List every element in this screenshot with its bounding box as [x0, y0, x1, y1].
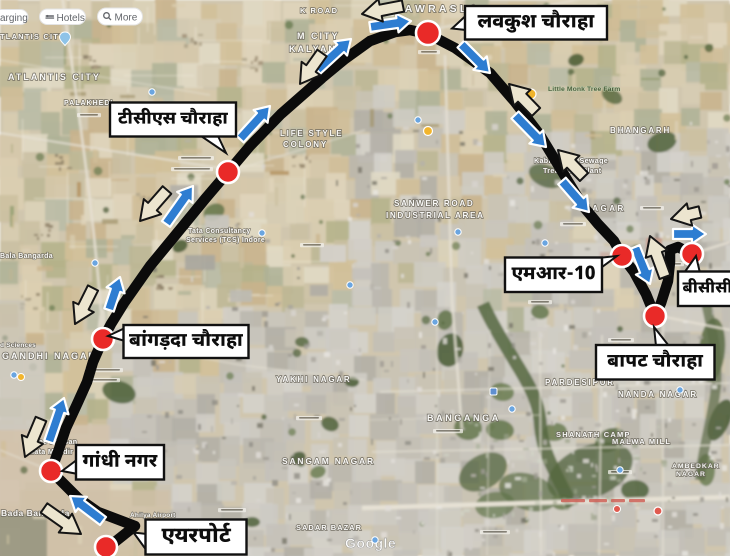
- svg-text:AMBEDKAR: AMBEDKAR: [672, 463, 720, 470]
- svg-text:TLANTIS CITY: TLANTIS CITY: [0, 32, 65, 41]
- svg-text:PALAKHEDI: PALAKHEDI: [64, 100, 113, 107]
- svg-text:SADAR BAZAR: SADAR BAZAR: [296, 523, 362, 532]
- svg-text:MALWA MILL: MALWA MILL: [612, 437, 671, 446]
- svg-text:NAGAR: NAGAR: [676, 471, 706, 478]
- svg-text:BHANGARH: BHANGARH: [610, 126, 671, 135]
- svg-text:GANDHI NAGAR: GANDHI NAGAR: [2, 351, 97, 361]
- svg-text:d Sciences: d Sciences: [0, 342, 36, 349]
- svg-text:arging: arging: [0, 13, 28, 24]
- svg-text:More: More: [115, 13, 138, 24]
- svg-text:COLONY: COLONY: [283, 140, 328, 149]
- svg-text:K ROAD: K ROAD: [300, 6, 339, 15]
- svg-text:BANGANGA: BANGANGA: [427, 413, 501, 423]
- svg-text:NANDA NAGAR: NANDA NAGAR: [618, 390, 698, 399]
- svg-text:Tata Consultancy: Tata Consultancy: [188, 228, 251, 235]
- svg-text:YAKHI NAGAR: YAKHI NAGAR: [276, 375, 352, 384]
- svg-text:SANWER ROAD: SANWER ROAD: [394, 199, 474, 208]
- svg-text:M CITY: M CITY: [297, 31, 340, 41]
- svg-text:Bala Bangarda: Bala Bangarda: [0, 253, 53, 260]
- svg-text:Google: Google: [345, 535, 396, 551]
- svg-text:ATLANTIS CITY: ATLANTIS CITY: [8, 72, 101, 82]
- svg-text:Little Monk Tree Farm: Little Monk Tree Farm: [548, 86, 620, 93]
- svg-text:SANGAM NAGAR: SANGAM NAGAR: [282, 456, 375, 466]
- svg-text:Services (TCS) Indore: Services (TCS) Indore: [186, 237, 265, 244]
- svg-text:LIFE STYLE: LIFE STYLE: [280, 129, 343, 138]
- svg-text:Hotels: Hotels: [57, 13, 85, 24]
- svg-text:Ahilya Airport: Ahilya Airport: [130, 512, 176, 519]
- svg-text:INDUSTRIAL AREA: INDUSTRIAL AREA: [386, 211, 485, 220]
